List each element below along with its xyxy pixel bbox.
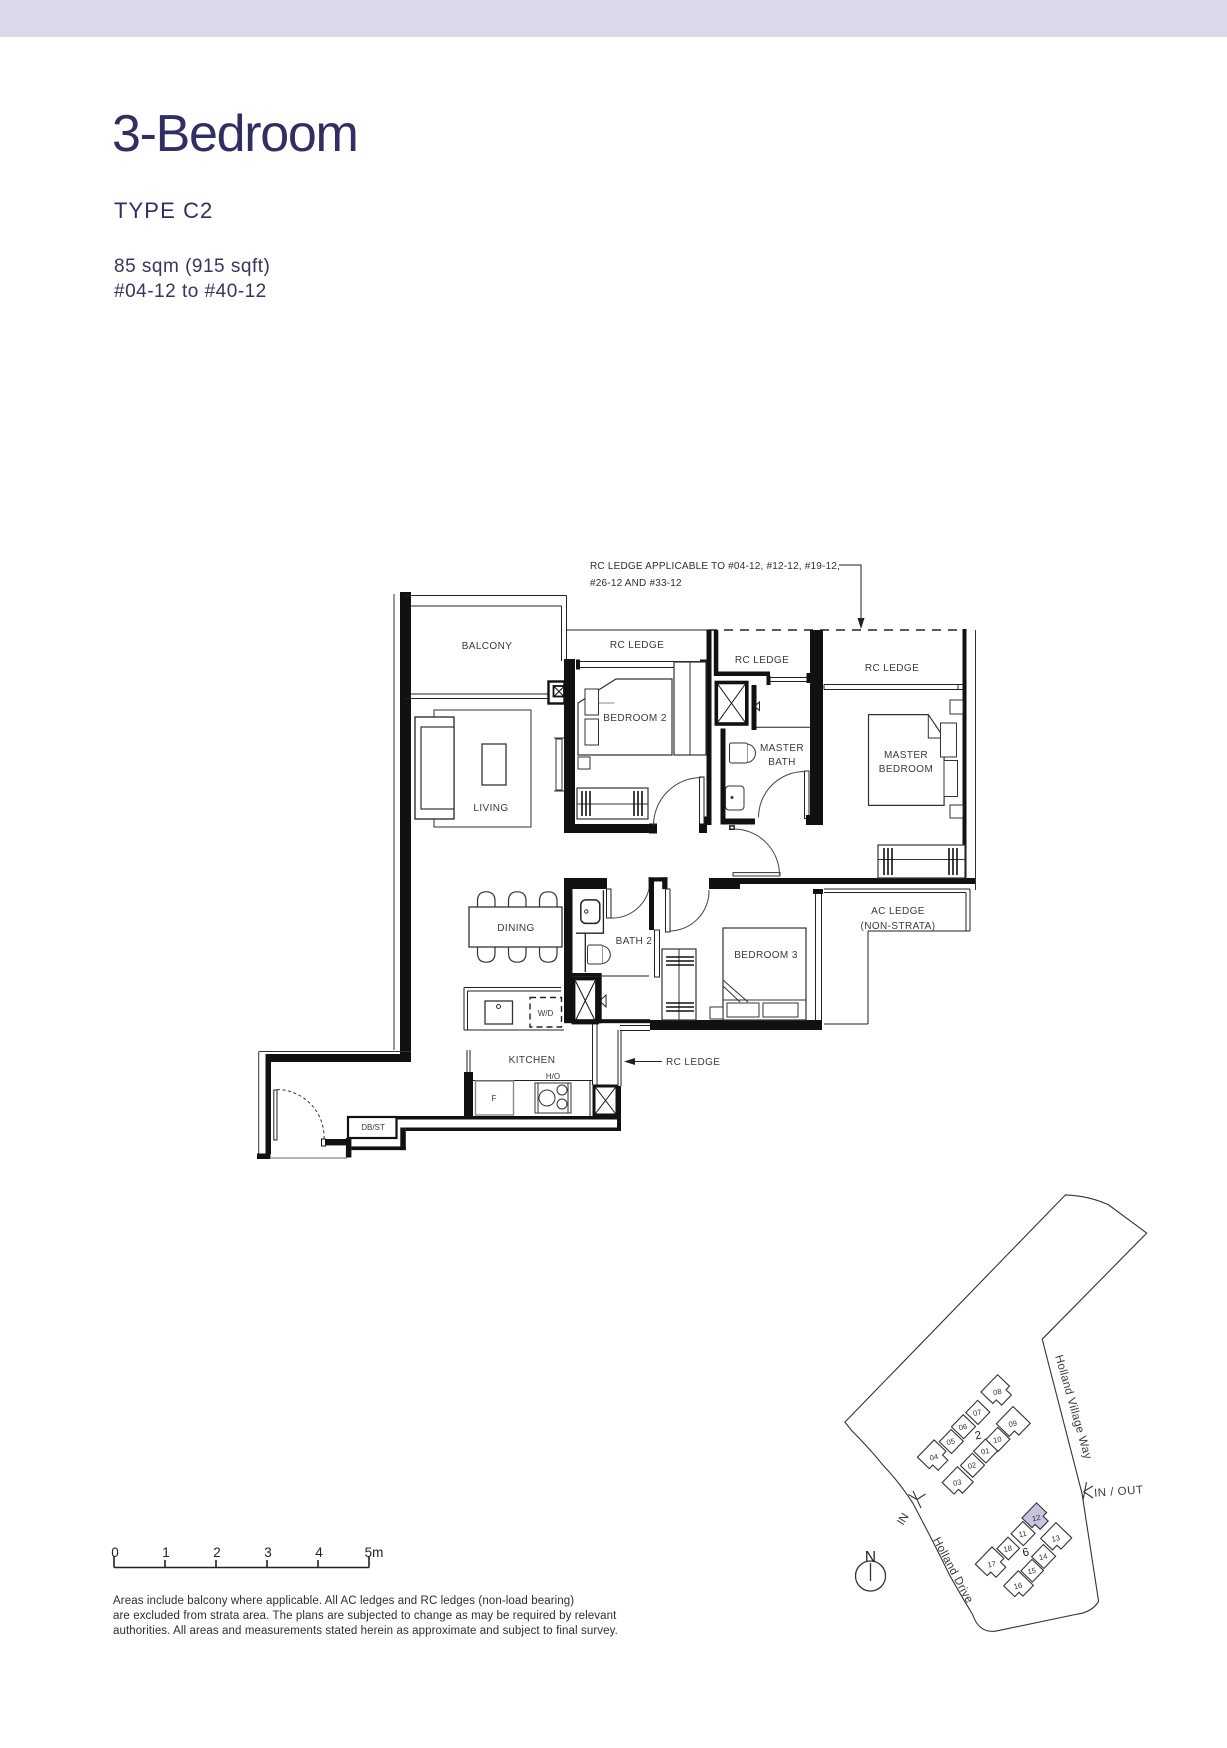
svg-text:IN / OUT: IN / OUT [1094,1484,1144,1499]
svg-text:MASTER: MASTER [760,743,804,754]
svg-text:RC LEDGE: RC LEDGE [610,640,664,651]
svg-text:BEDROOM: BEDROOM [879,764,933,775]
svg-text:2: 2 [213,1545,221,1560]
svg-text:6: 6 [1021,1546,1030,1559]
svg-text:Holland Village Way: Holland Village Way [1052,1354,1093,1461]
svg-text:(NON-STRATA): (NON-STRATA) [861,921,936,932]
svg-text:DINING: DINING [497,923,534,934]
svg-text:AC LEDGE: AC LEDGE [871,906,925,917]
svg-text:RC LEDGE: RC LEDGE [666,1057,720,1068]
svg-text:H/O: H/O [546,1072,560,1081]
svg-text:1: 1 [162,1545,170,1560]
svg-text:5m: 5m [365,1545,384,1560]
svg-text:DB/ST: DB/ST [361,1123,385,1132]
svg-text:RC LEDGE: RC LEDGE [865,663,919,674]
svg-text:BATH 2: BATH 2 [616,936,653,947]
svg-text:N: N [865,1549,876,1566]
svg-text:2: 2 [974,1430,983,1443]
svg-text:BEDROOM 2: BEDROOM 2 [603,713,667,724]
svg-text:KITCHEN: KITCHEN [509,1055,556,1066]
svg-text:BALCONY: BALCONY [462,641,513,652]
svg-text:Holland Drive: Holland Drive [930,1536,975,1606]
svg-text:#26-12 AND #33-12: #26-12 AND #33-12 [590,578,682,589]
svg-text:RC LEDGE: RC LEDGE [735,655,789,666]
svg-text:MASTER: MASTER [884,750,928,761]
svg-text:3: 3 [264,1545,272,1560]
svg-text:LIVING: LIVING [473,803,508,814]
svg-text:BATH: BATH [768,757,796,768]
svg-text:BEDROOM 3: BEDROOM 3 [734,950,798,961]
svg-text:W/D: W/D [538,1009,554,1018]
svg-text:F: F [492,1094,497,1103]
svg-text:RC LEDGE APPLICABLE TO #04-12,: RC LEDGE APPLICABLE TO #04-12, #12-12, #… [590,561,840,572]
svg-text:4: 4 [315,1545,323,1560]
svg-text:IN: IN [895,1511,911,1527]
svg-text:0: 0 [111,1545,119,1560]
